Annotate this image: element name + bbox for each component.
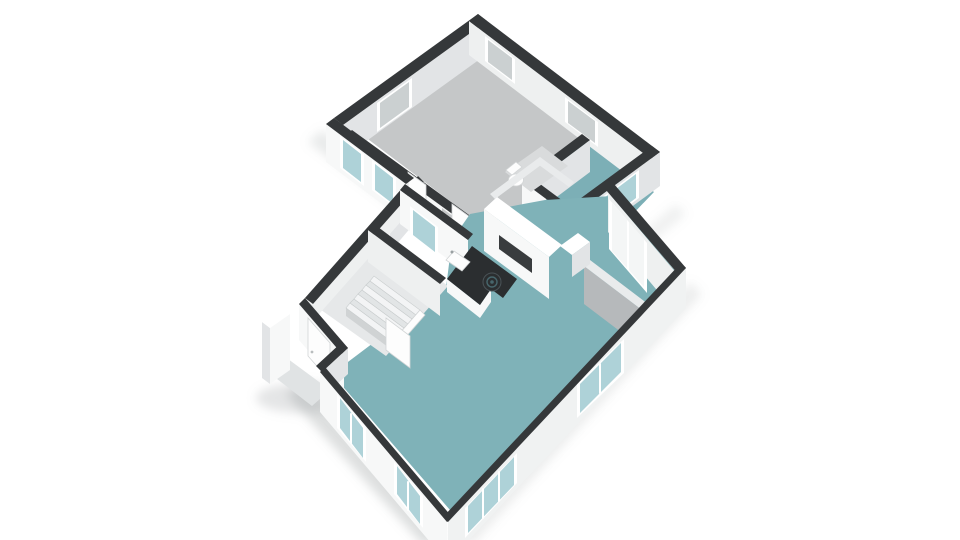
cooktop-ring: [490, 280, 494, 284]
sink-faucet: [451, 251, 454, 254]
door-handle: [311, 351, 314, 354]
floorplan-canvas: 3D isometric cutaway render of a single-…: [0, 0, 960, 540]
floorplan-3d-render: 3D isometric cutaway render of a single-…: [0, 0, 960, 540]
